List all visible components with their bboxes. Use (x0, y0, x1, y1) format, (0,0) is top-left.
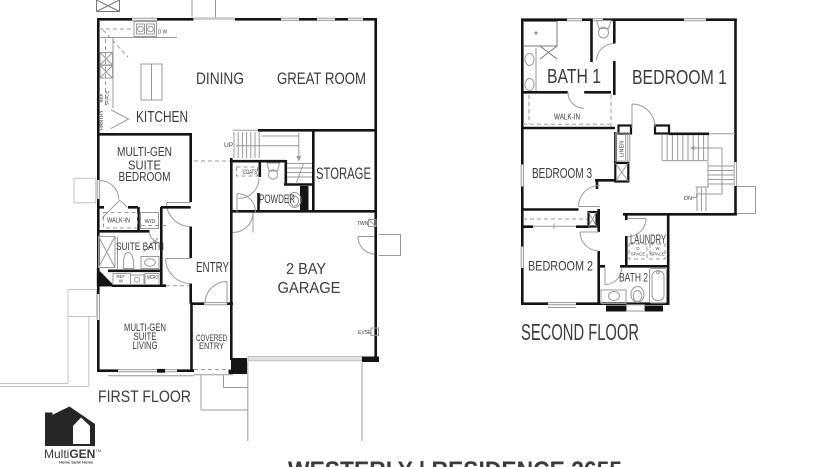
svg-text:MICRO: MICRO (147, 275, 158, 281)
svg-text:BEDROOM 2: BEDROOM 2 (528, 258, 593, 274)
svg-text:D: D (636, 246, 639, 251)
svg-text:SUITE BATH: SUITE BATH (116, 241, 164, 253)
svg-text:LINEN: LINEN (620, 141, 626, 157)
svg-text:ENTRY: ENTRY (199, 341, 224, 351)
svg-text:W/D: W/D (145, 219, 156, 225)
svg-text:WALK-IN: WALK-IN (107, 218, 130, 225)
svg-text:SPACE: SPACE (650, 252, 665, 257)
svg-text:UP: UP (224, 142, 233, 149)
svg-text:BATH 2: BATH 2 (619, 271, 648, 285)
svg-text:REF: REF (99, 93, 104, 102)
svg-text:2 BAY: 2 BAY (286, 261, 326, 278)
svg-text:SPACE: SPACE (631, 252, 646, 257)
svg-text:LAUNDRY: LAUNDRY (630, 232, 666, 247)
svg-text:STORAGE: STORAGE (316, 164, 371, 183)
svg-text:BEDROOM 1: BEDROOM 1 (632, 67, 727, 89)
svg-text:SECOND FLOOR: SECOND FLOOR (521, 319, 639, 345)
svg-text:TWN: TWN (357, 221, 369, 227)
svg-text:BEDROOM 3: BEDROOM 3 (532, 166, 592, 182)
svg-text:W: W (119, 279, 123, 284)
svg-text:LIVING: LIVING (133, 340, 158, 352)
svg-text:GARAGE: GARAGE (278, 280, 341, 297)
svg-text:BATH 1: BATH 1 (547, 66, 601, 88)
svg-text:BEDROOM: BEDROOM (119, 170, 171, 184)
svg-text:D.W.: D.W. (158, 30, 168, 36)
svg-text:MULTI-GEN: MULTI-GEN (117, 145, 172, 159)
svg-text:WALK-IN: WALK-IN (554, 113, 580, 122)
svg-text:Home Suite Home: Home Suite Home (59, 460, 94, 465)
svg-text:KITCHEN: KITCHEN (136, 109, 188, 126)
svg-text:DINING: DINING (196, 69, 244, 88)
svg-text:WESTERLY | RESIDENCE 2655: WESTERLY | RESIDENCE 2655 (288, 457, 622, 467)
svg-text:POWDER: POWDER (259, 194, 295, 206)
svg-text:FIRST FLOOR: FIRST FLOOR (98, 388, 191, 406)
svg-text:EVSE: EVSE (358, 330, 372, 336)
svg-text:PANTRY: PANTRY (99, 109, 105, 129)
svg-text:GREAT ROOM: GREAT ROOM (277, 69, 366, 88)
svg-text:SPACE: SPACE (105, 91, 110, 106)
svg-text:ENTRY: ENTRY (196, 259, 229, 276)
svg-text:DN: DN (684, 196, 692, 202)
svg-text:COATS: COATS (243, 169, 257, 176)
